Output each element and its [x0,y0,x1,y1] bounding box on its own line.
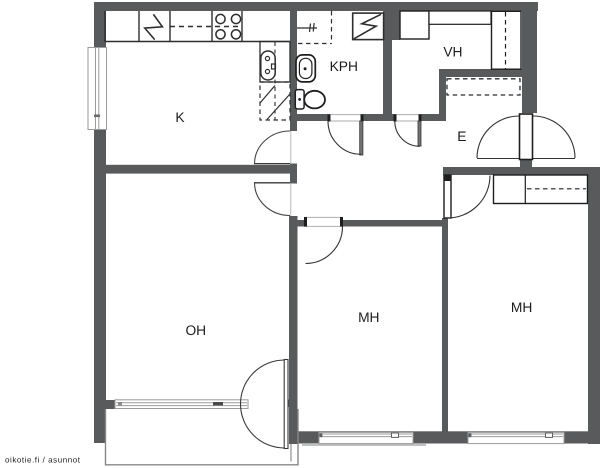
svg-text:OH: OH [185,323,206,338]
svg-text:K: K [175,110,185,125]
svg-text:E: E [457,129,466,144]
svg-text:KPH: KPH [330,59,358,74]
svg-text:MH: MH [511,300,532,315]
svg-text:oikotie.fi / asunnot: oikotie.fi / asunnot [5,456,81,465]
svg-text:MH: MH [358,310,379,325]
svg-text:VH: VH [443,44,462,59]
